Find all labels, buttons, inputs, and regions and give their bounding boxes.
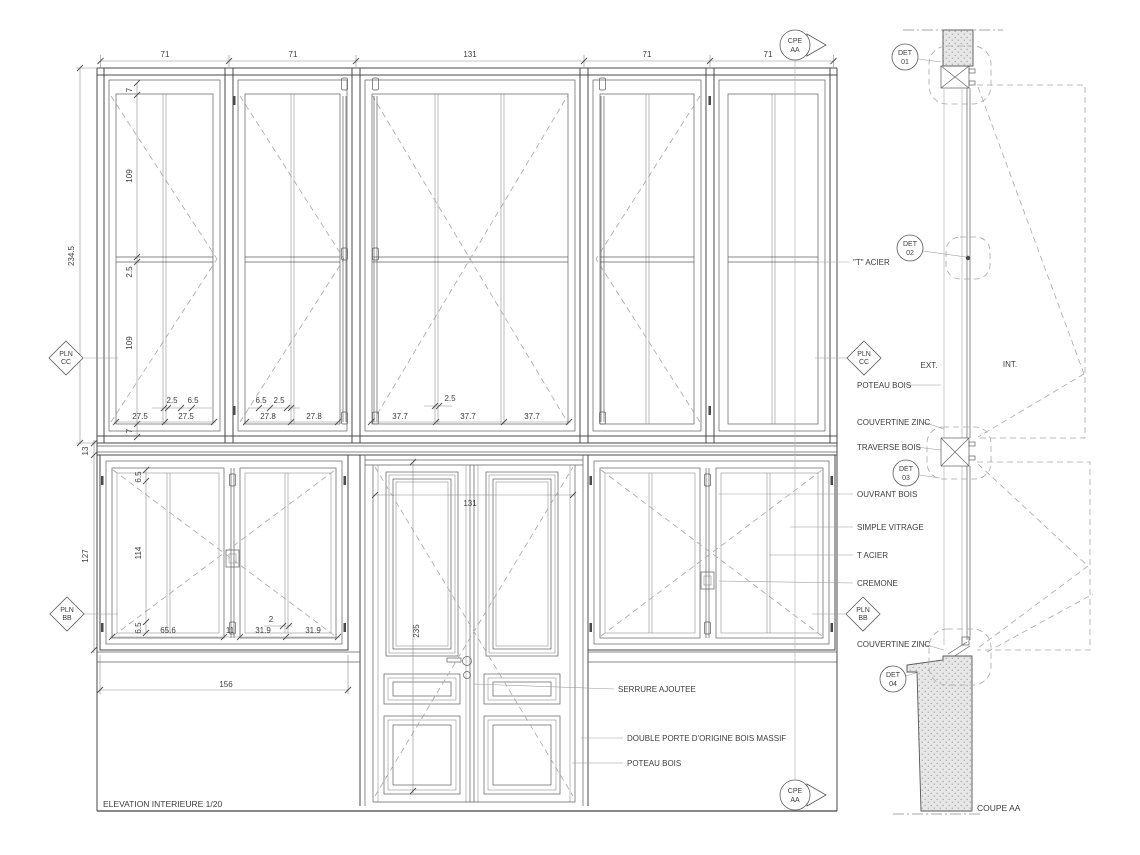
title-elevation: ELEVATION INTERIEURE 1/20 (103, 799, 222, 809)
label-couvertine-zinc: COUVERTINE ZINC (857, 418, 930, 427)
svg-text:PLN: PLN (856, 607, 870, 614)
label-cremone: CREMONE (857, 579, 898, 588)
svg-text:CPE: CPE (788, 38, 803, 45)
marker-cpe-aa-bottom: CPE AA (780, 780, 826, 810)
label-int: INT. (1003, 360, 1017, 369)
label-t-acier-top: "T" ACIER (853, 258, 890, 267)
cremone-hardware (600, 78, 606, 424)
cremone-hardware (226, 474, 239, 634)
dim-text: 2.5 (166, 396, 178, 405)
cremone-hardware (373, 78, 379, 424)
casement-swing-upper (977, 85, 1085, 438)
svg-text:01: 01 (901, 59, 909, 66)
traverse-box-top (941, 66, 975, 88)
label-poteau-bois: POTEAU BOIS (857, 381, 911, 390)
dim-text: 31.9 (305, 626, 321, 635)
svg-text:PLN: PLN (59, 351, 73, 358)
dim-text: 27.5 (132, 412, 148, 421)
upper-window-bay4 (593, 78, 701, 431)
elevation-view (97, 61, 837, 811)
dimension-lines: 71 71 131 71 71 234.5 7 109 2.5 109 7 13… (67, 50, 837, 794)
dim-text: 109 (125, 336, 134, 350)
door-bottom-panels (384, 716, 560, 794)
dim-text: 6.5 (134, 471, 143, 483)
label-double-porte: DOUBLE PORTE D'ORIGINE BOIS MASSIF (627, 734, 786, 743)
svg-text:03: 03 (902, 475, 910, 482)
svg-text:DET: DET (898, 50, 913, 57)
dim-text: 7 (125, 87, 134, 92)
detail-bubble-03 (927, 427, 991, 479)
title-section: COUPE AA (977, 803, 1021, 813)
elevation-envelope (97, 68, 837, 811)
drawing-canvas: 71 71 131 71 71 234.5 7 109 2.5 109 7 13… (0, 0, 1140, 855)
marker-det-02: DET 02 (897, 235, 966, 261)
dim-text: 2.5 (444, 394, 456, 403)
dim-text: 156 (219, 680, 233, 689)
lower-right-window (588, 455, 835, 650)
dim-text: 109 (125, 169, 134, 183)
marker-det-03: DET 03 (893, 460, 940, 486)
dim-text: 127 (81, 549, 90, 563)
upper-window-bay5 (719, 80, 825, 431)
cremone-hardware (701, 474, 714, 634)
dim-text: 37.7 (392, 412, 408, 421)
dim-text: 27.8 (260, 412, 276, 421)
dim-text: 37.7 (460, 412, 476, 421)
marker-pln-bb-left: PLN BB (50, 597, 118, 631)
svg-text:04: 04 (889, 681, 897, 688)
dim-text: 37.7 (524, 412, 540, 421)
masonry-wall-top (943, 30, 973, 66)
dim-text: 71 (289, 50, 298, 59)
dim-text: 6.5 (255, 396, 267, 405)
svg-text:BB: BB (858, 615, 868, 622)
label-ouvrant-bois: OUVRANT BOIS (857, 490, 917, 499)
svg-text:PLN: PLN (857, 351, 871, 358)
dim-text: 71 (643, 50, 652, 59)
masonry-sill-wall (907, 656, 972, 811)
label-serrure: SERRURE AJOUTEE (618, 685, 696, 694)
svg-text:AA: AA (790, 797, 800, 804)
dim-text: 7 (125, 428, 134, 433)
dim-text: 31.9 (255, 626, 271, 635)
dim-text: 11 (226, 626, 235, 635)
dim-text: 71 (161, 50, 170, 59)
svg-text:CC: CC (61, 359, 71, 366)
upper-window-bay2 (238, 78, 348, 431)
label-t-acier: T ACIER (857, 551, 888, 560)
dim-text: 2.5 (273, 396, 285, 405)
label-ext: EXT. (921, 361, 938, 370)
cremone-hardware (342, 78, 348, 424)
label-traverse-bois: TRAVERSE BOIS (857, 443, 921, 452)
dim-text: 65.6 (160, 626, 176, 635)
dim-text: 71 (764, 50, 773, 59)
dim-text: 6.5 (134, 622, 143, 634)
plinth-wall (97, 652, 837, 662)
svg-text:02: 02 (906, 250, 914, 257)
marker-cpe-aa-top: CPE AA (780, 30, 826, 60)
dim-text: 235 (412, 624, 421, 638)
dim-text: 13 (81, 446, 90, 455)
label-couvertine-zinc-2: COUVERTINE ZINC (857, 640, 930, 649)
dim-text: 6.5 (187, 396, 199, 405)
marker-pln-cc-left: PLN CC (49, 341, 118, 375)
svg-text:BB: BB (62, 615, 72, 622)
svg-text:CC: CC (859, 359, 869, 366)
svg-text:DET: DET (899, 466, 914, 473)
svg-text:PLN: PLN (60, 607, 74, 614)
marker-det-01: DET 01 (892, 44, 941, 70)
upper-window-bay3 (365, 78, 575, 431)
dim-text: 2.5 (125, 266, 134, 278)
dim-text: 27.8 (306, 412, 322, 421)
marker-pln-bb-right: PLN BB (812, 597, 880, 631)
svg-text:DET: DET (903, 241, 918, 248)
dim-text: 131 (463, 50, 477, 59)
dim-text: 27.5 (178, 412, 194, 421)
architectural-drawing-sheet: 71 71 131 71 71 234.5 7 109 2.5 109 7 13… (0, 0, 1140, 855)
door-mid-panels (384, 674, 560, 704)
detail-bubble-02 (946, 237, 990, 279)
svg-text:DET: DET (886, 672, 901, 679)
traverse-box-mid (941, 438, 975, 466)
casement-swing-lower (977, 462, 1093, 652)
upper-window-bay1 (109, 80, 220, 431)
dim-text: 131 (463, 499, 477, 508)
svg-text:CPE: CPE (788, 788, 803, 795)
label-poteau-bois-2: POTEAU BOIS (627, 759, 681, 768)
label-simple-vitrage: SIMPLE VITRAGE (857, 523, 924, 532)
annotation-labels: "T" ACIER POTEAU BOIS COUVERTINE ZINC TR… (103, 258, 1021, 813)
door-handle-lock (447, 657, 472, 679)
dim-text: 234.5 (67, 245, 76, 266)
svg-text:AA: AA (790, 47, 800, 54)
dim-text: 114 (134, 546, 143, 559)
dim-text: 2 (269, 615, 274, 624)
post-and-glazing (944, 88, 970, 645)
